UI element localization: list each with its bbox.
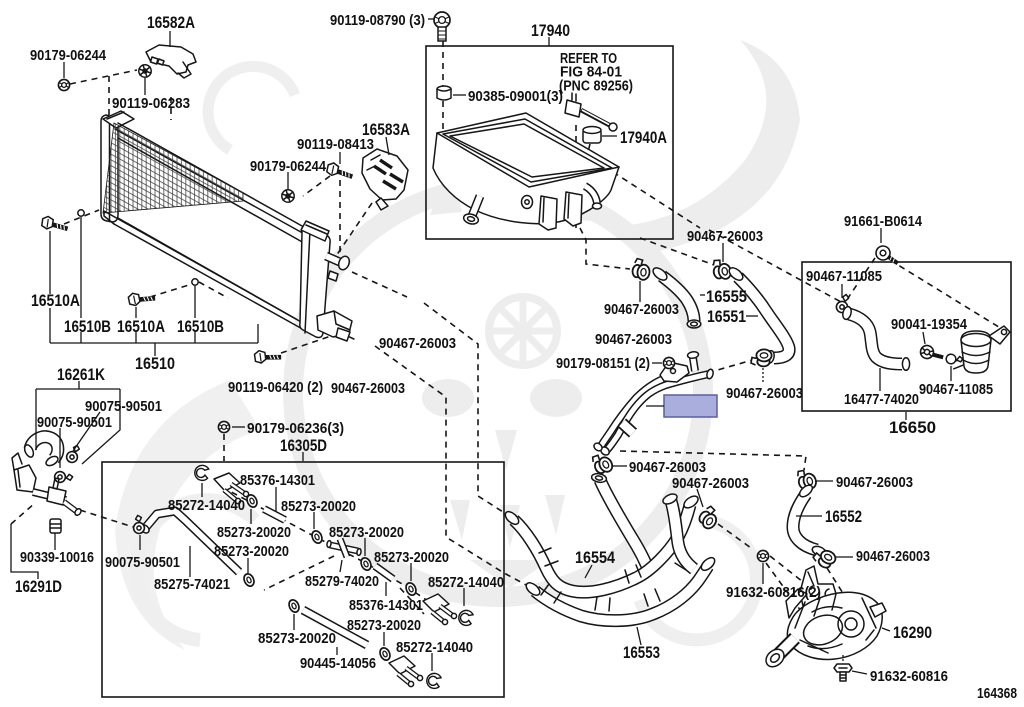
svg-text:16510A: 16510A — [31, 292, 80, 310]
svg-text:90467-26003: 90467-26003 — [379, 336, 456, 352]
svg-text:85273-20020: 85273-20020 — [214, 544, 289, 560]
svg-text:85376-14301: 85376-14301 — [240, 473, 315, 489]
svg-text:17940A: 17940A — [620, 129, 667, 147]
svg-text:91632-60816: 91632-60816 — [870, 669, 948, 685]
svg-text:90467-26003: 90467-26003 — [687, 229, 763, 245]
svg-text:16510B: 16510B — [64, 318, 111, 336]
svg-text:85273-20020: 85273-20020 — [329, 525, 404, 541]
svg-text:17940: 17940 — [531, 22, 570, 40]
svg-text:90041-19354: 90041-19354 — [891, 317, 967, 333]
svg-text:90467-26003: 90467-26003 — [604, 302, 679, 318]
svg-text:16552: 16552 — [825, 508, 862, 526]
svg-text:90467-26003: 90467-26003 — [595, 332, 672, 348]
svg-text:85376-14301: 85376-14301 — [349, 598, 423, 614]
svg-text:85273-20020: 85273-20020 — [374, 550, 449, 566]
svg-text:90467-11085: 90467-11085 — [919, 382, 993, 398]
svg-text:90339-10016: 90339-10016 — [20, 550, 94, 566]
svg-text:90119-08790 (3): 90119-08790 (3) — [330, 13, 425, 29]
svg-text:90179-06244: 90179-06244 — [30, 48, 106, 64]
svg-text:90075-90501: 90075-90501 — [105, 555, 180, 571]
svg-text:85272-14040: 85272-14040 — [428, 575, 504, 591]
svg-text:90179-08151 (2): 90179-08151 (2) — [556, 356, 650, 372]
svg-text:91661-B0614: 91661-B0614 — [844, 214, 922, 230]
svg-text:90467-26003: 90467-26003 — [331, 381, 405, 397]
svg-text:85272-14040: 85272-14040 — [168, 498, 245, 514]
svg-text:16551: 16551 — [707, 308, 746, 326]
svg-text:16555: 16555 — [706, 288, 747, 306]
svg-text:90467-26003: 90467-26003 — [836, 475, 913, 491]
svg-text:90445-14056: 90445-14056 — [300, 656, 376, 672]
svg-text:85272-14040: 85272-14040 — [396, 640, 473, 656]
svg-text:(PNC 89256): (PNC 89256) — [559, 79, 633, 95]
svg-text:85273-20020: 85273-20020 — [258, 631, 336, 647]
svg-text:90075-90501: 90075-90501 — [37, 415, 112, 431]
svg-text:16510A: 16510A — [117, 318, 165, 336]
svg-text:16650: 16650 — [889, 419, 936, 437]
svg-text:16582A: 16582A — [147, 14, 195, 32]
svg-text:91632-60816(2): 91632-60816(2) — [726, 585, 821, 601]
svg-text:16291D: 16291D — [15, 578, 62, 596]
svg-text:85275-74021: 85275-74021 — [154, 577, 230, 593]
svg-text:90467-26003: 90467-26003 — [856, 549, 930, 565]
svg-text:16305D: 16305D — [280, 437, 327, 455]
svg-text:90179-06244: 90179-06244 — [250, 159, 326, 175]
svg-text:85273-20020: 85273-20020 — [281, 499, 356, 515]
svg-text:16290: 16290 — [893, 624, 932, 642]
svg-text:16554: 16554 — [575, 549, 616, 567]
svg-text:16553: 16553 — [623, 644, 660, 662]
svg-text:16510: 16510 — [135, 355, 175, 373]
svg-text:90467-26003: 90467-26003 — [726, 386, 803, 402]
svg-text:16583A: 16583A — [362, 121, 410, 139]
svg-text:90385-09001(3): 90385-09001(3) — [468, 89, 563, 105]
svg-text:90119-06283: 90119-06283 — [112, 96, 190, 112]
svg-text:16477-74020: 16477-74020 — [844, 392, 919, 408]
svg-text:85279-74020: 85279-74020 — [305, 574, 379, 590]
svg-text:85273-20020: 85273-20020 — [217, 525, 291, 541]
svg-text:90467-11085: 90467-11085 — [806, 269, 882, 285]
svg-text:90119-06420 (2): 90119-06420 (2) — [228, 380, 323, 396]
svg-text:85273-20020: 85273-20020 — [347, 618, 421, 634]
svg-text:90467-26003: 90467-26003 — [672, 476, 749, 492]
svg-text:90075-90501: 90075-90501 — [85, 399, 162, 415]
svg-text:16261K: 16261K — [57, 366, 105, 384]
svg-text:164368: 164368 — [977, 686, 1017, 702]
svg-text:16510B: 16510B — [177, 318, 224, 336]
svg-text:90467-26003: 90467-26003 — [629, 460, 706, 476]
svg-text:90119-08413: 90119-08413 — [297, 137, 374, 153]
svg-text:90179-06236(3): 90179-06236(3) — [247, 421, 344, 437]
